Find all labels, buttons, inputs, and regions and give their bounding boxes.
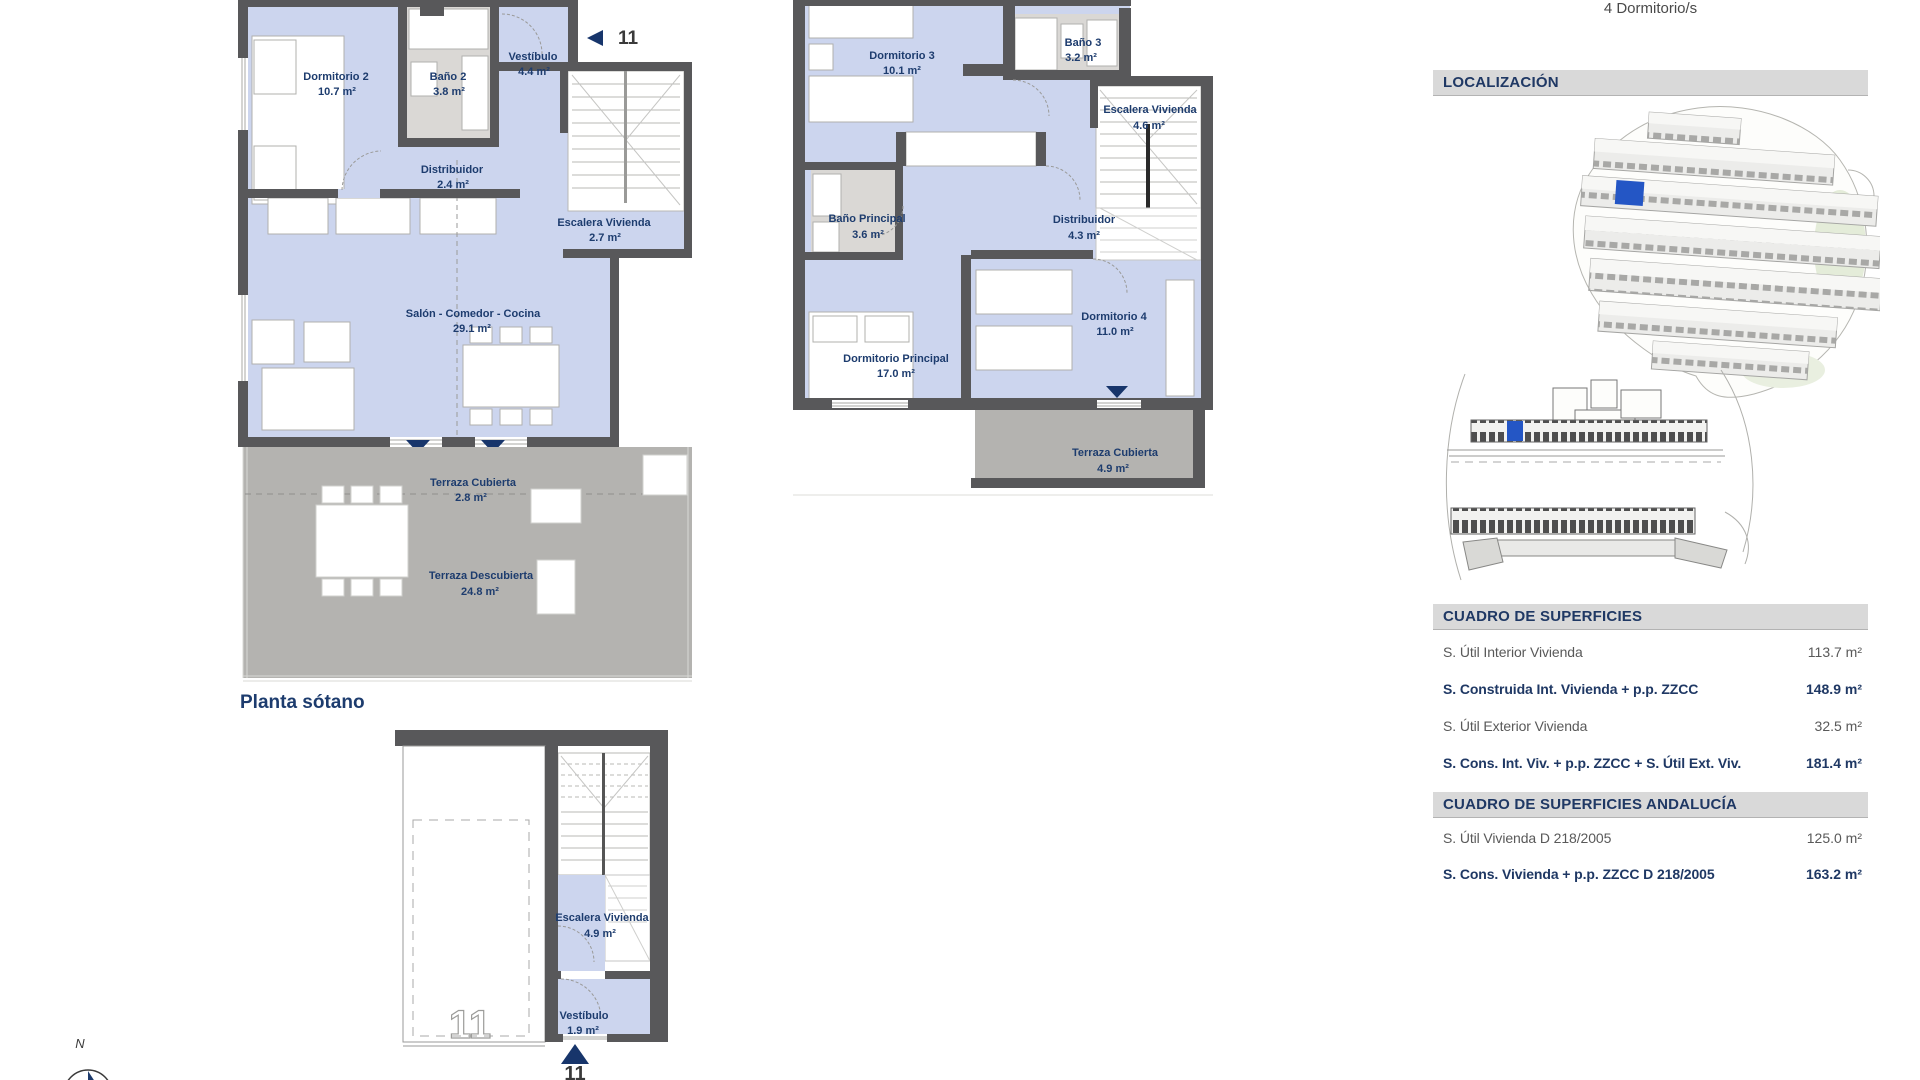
table-row: S. Útil Interior Vivienda 113.7 m² — [1433, 633, 1868, 670]
row-label: S. Cons. Vivienda + p.p. ZZCC D 218/2005 — [1443, 866, 1715, 882]
building-wing — [1485, 540, 1681, 556]
table-row: S. Útil Vivienda D 218/2005 125.0 m² — [1433, 820, 1868, 856]
room-area: 3.8 m² — [433, 86, 465, 98]
room-area: 4.6 m² — [1133, 120, 1165, 132]
room-area: 4.3 m² — [1068, 230, 1100, 242]
room-area: 4.9 m² — [584, 928, 616, 940]
highlighted-unit-3d — [1615, 180, 1645, 206]
row-label: S. Útil Vivienda D 218/2005 — [1443, 830, 1611, 846]
room-label: Dormitorio 3 — [869, 50, 934, 62]
room-label: Salón - Comedor - Cocina — [406, 308, 541, 320]
building-cluster — [1553, 380, 1661, 424]
room-label: Escalera Vivienda — [555, 912, 649, 924]
room-label: Baño 3 — [1065, 37, 1102, 49]
room-label: Distribuidor — [1053, 214, 1116, 226]
garage-space-number: 11 — [449, 1003, 491, 1047]
room-area: 11.0 m² — [1096, 326, 1134, 338]
room-label: Vestíbulo — [560, 1010, 609, 1022]
room-label: Dormitorio Principal — [843, 353, 949, 365]
table-row: S. Cons. Int. Viv. + p.p. ZZCC + S. Útil… — [1433, 744, 1868, 781]
stairs-ground — [568, 71, 684, 211]
entrance-arrow-up-icon — [561, 1044, 589, 1064]
compass-north-label: N — [75, 1036, 85, 1051]
room-label: Dormitorio 2 — [303, 71, 368, 83]
road-arc — [1725, 512, 1748, 564]
page: 11 Dormitorio 2 10.7 m² Baño 2 3.8 m² Ve… — [0, 0, 1920, 1080]
row-label: S. Cons. Int. Viv. + p.p. ZZCC + S. Útil… — [1443, 755, 1741, 771]
floor-plan-basement: 11 11 Escalera Vivienda 4.9 m² — [395, 728, 673, 1080]
location-map-2d — [1425, 362, 1757, 604]
superficies-andalucia-table: S. Útil Vivienda D 218/2005 125.0 m² S. … — [1433, 820, 1868, 892]
room-label: Terraza Cubierta — [1072, 447, 1159, 459]
room-area: 3.6 m² — [852, 229, 884, 241]
room-area: 10.7 m² — [318, 86, 356, 98]
highlighted-unit-2d — [1507, 421, 1523, 441]
building-row-upper — [1471, 420, 1707, 442]
room-label: Escalera Vivienda — [557, 217, 651, 229]
table-row: S. Cons. Vivienda + p.p. ZZCC D 218/2005… — [1433, 856, 1868, 892]
room-label: Terraza Cubierta — [430, 477, 517, 489]
row-value: 163.2 m² — [1806, 866, 1862, 882]
room-area: 1.9 m² — [567, 1025, 599, 1037]
building-wing — [1675, 538, 1727, 568]
room-label: Escalera Vivienda — [1103, 104, 1197, 116]
table-row: S. Útil Exterior Vivienda 32.5 m² — [1433, 707, 1868, 744]
room-area: 2.8 m² — [455, 492, 487, 504]
room-area: 29.1 m² — [453, 323, 491, 335]
site-boundary-arc — [1721, 370, 1753, 552]
room-area: 17.0 m² — [877, 368, 915, 380]
room-label: Terraza Descubierta — [429, 570, 534, 582]
location-map-3d — [1548, 98, 1880, 406]
room-area: 4.9 m² — [1097, 463, 1129, 475]
row-value: 148.9 m² — [1806, 681, 1862, 697]
floor-plan-first: Dormitorio 3 10.1 m² Baño 3 3.2 m² Escal… — [784, 0, 1215, 500]
section-header-superficies-andalucia: CUADRO DE SUPERFICIES ANDALUCÍA — [1433, 792, 1868, 818]
section-header-superficies: CUADRO DE SUPERFICIES — [1433, 604, 1868, 630]
room-area: 3.2 m² — [1065, 52, 1097, 64]
walls-basement-top — [395, 730, 668, 746]
garage: 11 — [403, 746, 545, 1047]
building-wing — [1463, 538, 1503, 570]
row-value: 125.0 m² — [1807, 830, 1862, 846]
row-label: S. Construida Int. Vivienda + p.p. ZZCC — [1443, 681, 1698, 697]
plan-title-ground: Planta sótano — [240, 691, 365, 715]
room-area: 4.4 m² — [518, 66, 550, 78]
unit-number: 11 — [564, 1063, 585, 1080]
row-label: S. Útil Interior Vivienda — [1443, 644, 1583, 660]
row-value: 113.7 m² — [1808, 644, 1862, 660]
room-label: Baño 2 — [430, 71, 467, 83]
superficies-table: S. Útil Interior Vivienda 113.7 m² S. Co… — [1433, 633, 1868, 781]
building-row-lower — [1451, 508, 1695, 534]
room-label: Baño Principal — [828, 213, 905, 225]
unit-number: 11 — [618, 28, 639, 49]
bedroom-count: 4 Dormitorio/s — [1433, 0, 1868, 17]
room-label: Vestíbulo — [509, 51, 558, 63]
unit-pointer-left-icon — [587, 30, 603, 46]
room-area: 10.1 m² — [883, 65, 921, 77]
site-boundary-arc — [1446, 374, 1465, 580]
row-label: S. Útil Exterior Vivienda — [1443, 718, 1587, 734]
compass-icon: N — [46, 1032, 136, 1080]
row-value: 32.5 m² — [1815, 718, 1862, 734]
table-row: S. Construida Int. Vivienda + p.p. ZZCC … — [1433, 670, 1868, 707]
row-value: 181.4 m² — [1806, 755, 1862, 771]
room-label: Dormitorio 4 — [1081, 311, 1147, 323]
room-area: 24.8 m² — [461, 586, 499, 598]
floor-plan-ground: 11 Dormitorio 2 10.7 m² Baño 2 3.8 m² Ve… — [238, 0, 695, 690]
room-label: Distribuidor — [421, 164, 484, 176]
section-header-localizacion: LOCALIZACIÓN — [1433, 70, 1868, 96]
road-lines — [1447, 450, 1725, 456]
room-area: 2.7 m² — [589, 232, 621, 244]
room-area: 2.4 m² — [437, 179, 469, 191]
terrace-first — [975, 410, 1193, 478]
